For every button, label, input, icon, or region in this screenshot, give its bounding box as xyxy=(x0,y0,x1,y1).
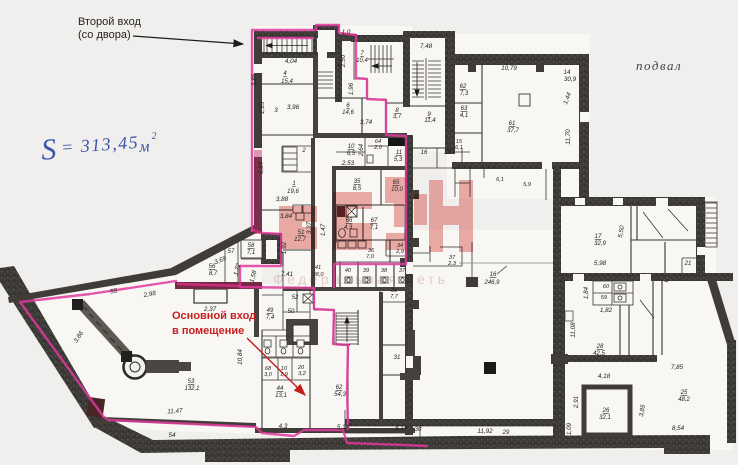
svg-text:16: 16 xyxy=(490,272,497,278)
svg-text:4,3: 4,3 xyxy=(279,423,288,430)
svg-text:5,9: 5,9 xyxy=(523,182,531,188)
svg-text:5,84: 5,84 xyxy=(258,161,265,174)
svg-text:3,7: 3,7 xyxy=(393,114,402,120)
svg-text:60: 60 xyxy=(603,284,610,290)
svg-text:32,9: 32,9 xyxy=(594,241,606,247)
svg-text:4,3: 4,3 xyxy=(344,225,353,231)
svg-text:7,41: 7,41 xyxy=(281,271,293,278)
svg-text:3,85: 3,85 xyxy=(251,73,258,86)
svg-text:1,84: 1,84 xyxy=(583,286,590,299)
svg-text:48,2: 48,2 xyxy=(678,397,690,403)
svg-text:4,04: 4,04 xyxy=(285,58,298,65)
svg-text:Второй вход: Второй вход xyxy=(78,16,142,28)
svg-text:7,0: 7,0 xyxy=(366,254,375,260)
svg-text:30: 30 xyxy=(415,427,422,433)
svg-text:39: 39 xyxy=(363,268,369,274)
svg-text:32,1: 32,1 xyxy=(599,415,611,421)
svg-text:2,37: 2,37 xyxy=(203,306,217,313)
svg-text:2,3: 2,3 xyxy=(447,261,457,267)
svg-text:6,5: 6,5 xyxy=(347,151,356,157)
svg-text:13: 13 xyxy=(444,150,451,156)
svg-text:1,82: 1,82 xyxy=(600,307,613,314)
svg-text:2,53: 2,53 xyxy=(341,160,355,167)
svg-text:16: 16 xyxy=(421,150,428,156)
svg-text:63: 63 xyxy=(461,106,468,112)
svg-text:246,9: 246,9 xyxy=(483,280,500,286)
svg-text:25: 25 xyxy=(680,390,688,396)
svg-text:11: 11 xyxy=(396,150,402,156)
svg-text:1,9: 1,9 xyxy=(280,372,288,378)
svg-text:12,7: 12,7 xyxy=(294,237,306,243)
svg-text:2,0: 2,0 xyxy=(373,145,383,151)
svg-text:1: 1 xyxy=(292,181,295,187)
svg-text:8,54: 8,54 xyxy=(672,425,685,432)
svg-text:29: 29 xyxy=(502,430,510,436)
svg-text:38,0: 38,0 xyxy=(313,272,325,278)
svg-text:40: 40 xyxy=(345,268,352,274)
svg-text:42,5: 42,5 xyxy=(593,351,605,357)
svg-text:3,96: 3,96 xyxy=(287,104,300,111)
svg-text:2,64: 2,64 xyxy=(358,143,365,157)
svg-text:31: 31 xyxy=(394,355,401,361)
svg-text:1,92: 1,92 xyxy=(281,241,288,254)
svg-text:8,5: 8,5 xyxy=(353,186,362,192)
svg-text:54: 54 xyxy=(168,432,176,439)
svg-text:50: 50 xyxy=(288,309,295,315)
svg-text:7,1: 7,1 xyxy=(370,225,378,231)
svg-text:10,4: 10,4 xyxy=(356,58,368,64)
svg-text:5,98: 5,98 xyxy=(594,260,607,267)
svg-text:4,1: 4,1 xyxy=(460,113,468,119)
svg-text:4,18: 4,18 xyxy=(598,373,611,380)
svg-text:14: 14 xyxy=(563,69,571,76)
svg-text:38: 38 xyxy=(381,268,388,274)
svg-text:5,34: 5,34 xyxy=(337,424,350,431)
svg-text:11,70: 11,70 xyxy=(565,129,572,145)
svg-text:2,50: 2,50 xyxy=(340,54,347,68)
svg-text:6,1: 6,1 xyxy=(496,177,504,183)
svg-text:10: 10 xyxy=(348,144,355,150)
svg-text:1,96: 1,96 xyxy=(348,82,355,95)
svg-text:2,9: 2,9 xyxy=(395,249,404,255)
svg-text:61: 61 xyxy=(509,121,516,127)
svg-text:19,6: 19,6 xyxy=(287,189,299,195)
svg-text:7,4: 7,4 xyxy=(266,315,275,321)
svg-text:7,7: 7,7 xyxy=(390,294,399,300)
svg-text:7,3: 7,3 xyxy=(460,91,469,97)
svg-text:8,7: 8,7 xyxy=(209,271,218,277)
svg-text:51: 51 xyxy=(298,230,305,236)
svg-text:1,95: 1,95 xyxy=(259,101,266,114)
svg-text:3,74: 3,74 xyxy=(360,119,373,126)
svg-text:15,4: 15,4 xyxy=(281,79,293,85)
svg-text:3,84: 3,84 xyxy=(280,213,293,220)
svg-text:35: 35 xyxy=(354,179,361,185)
svg-text:1,09: 1,09 xyxy=(566,422,573,435)
svg-text:1,47: 1,47 xyxy=(320,223,327,236)
svg-text:1,0: 1,0 xyxy=(342,29,351,36)
svg-text:49: 49 xyxy=(267,308,274,314)
svg-text:44: 44 xyxy=(277,386,284,392)
svg-text:14,6: 14,6 xyxy=(342,110,354,116)
svg-text:7,85: 7,85 xyxy=(671,364,684,371)
svg-text:2: 2 xyxy=(151,131,157,142)
svg-text:59: 59 xyxy=(601,295,607,301)
svg-text:67: 67 xyxy=(371,218,378,224)
svg-text:в помещение: в помещение xyxy=(172,325,244,337)
svg-text:28: 28 xyxy=(596,344,604,350)
svg-text:Федеральная сеть: Федеральная сеть xyxy=(273,271,447,287)
svg-text:66: 66 xyxy=(346,218,353,224)
svg-text:3,88: 3,88 xyxy=(276,196,289,203)
svg-text:S: S xyxy=(40,133,57,167)
svg-text:7,1: 7,1 xyxy=(247,250,255,256)
svg-text:37: 37 xyxy=(399,268,406,274)
svg-text:41: 41 xyxy=(315,265,321,271)
svg-text:3,2: 3,2 xyxy=(298,371,307,377)
svg-text:м: м xyxy=(138,138,150,156)
svg-text:подвал: подвал xyxy=(636,58,682,73)
svg-text:52: 52 xyxy=(292,295,299,301)
svg-text:58: 58 xyxy=(248,243,255,249)
svg-text:11,47: 11,47 xyxy=(167,407,183,415)
svg-text:10,79: 10,79 xyxy=(501,65,517,72)
svg-text:132,1: 132,1 xyxy=(184,386,199,392)
svg-text:62: 62 xyxy=(336,385,343,391)
svg-text:53: 53 xyxy=(188,379,195,385)
svg-text:26: 26 xyxy=(602,408,610,414)
svg-text:2,91: 2,91 xyxy=(573,396,580,409)
svg-text:37,7: 37,7 xyxy=(507,128,519,134)
svg-text:10,0: 10,0 xyxy=(391,187,403,193)
svg-text:3,0: 3,0 xyxy=(264,372,273,378)
svg-text:(со двора): (со двора) xyxy=(78,29,131,41)
svg-text:5,3: 5,3 xyxy=(394,157,403,163)
svg-text:7,48: 7,48 xyxy=(420,43,433,50)
svg-text:13,1: 13,1 xyxy=(275,393,287,399)
svg-text:65: 65 xyxy=(393,180,400,186)
svg-text:2: 2 xyxy=(301,148,306,154)
svg-text:17: 17 xyxy=(595,234,602,240)
svg-text:11,92: 11,92 xyxy=(477,428,493,435)
svg-text:6,1: 6,1 xyxy=(455,145,463,151)
svg-text:11,08: 11,08 xyxy=(570,322,577,338)
svg-text:11,4: 11,4 xyxy=(424,118,436,124)
svg-text:10,84: 10,84 xyxy=(237,349,244,365)
svg-text:4,14: 4,14 xyxy=(395,425,408,432)
svg-text:57: 57 xyxy=(228,249,235,255)
svg-text:62: 62 xyxy=(460,84,467,90)
svg-text:30,9: 30,9 xyxy=(564,76,577,83)
svg-text:21: 21 xyxy=(684,261,692,267)
svg-text:54,3: 54,3 xyxy=(334,392,346,398)
svg-text:3,37: 3,37 xyxy=(306,221,313,234)
